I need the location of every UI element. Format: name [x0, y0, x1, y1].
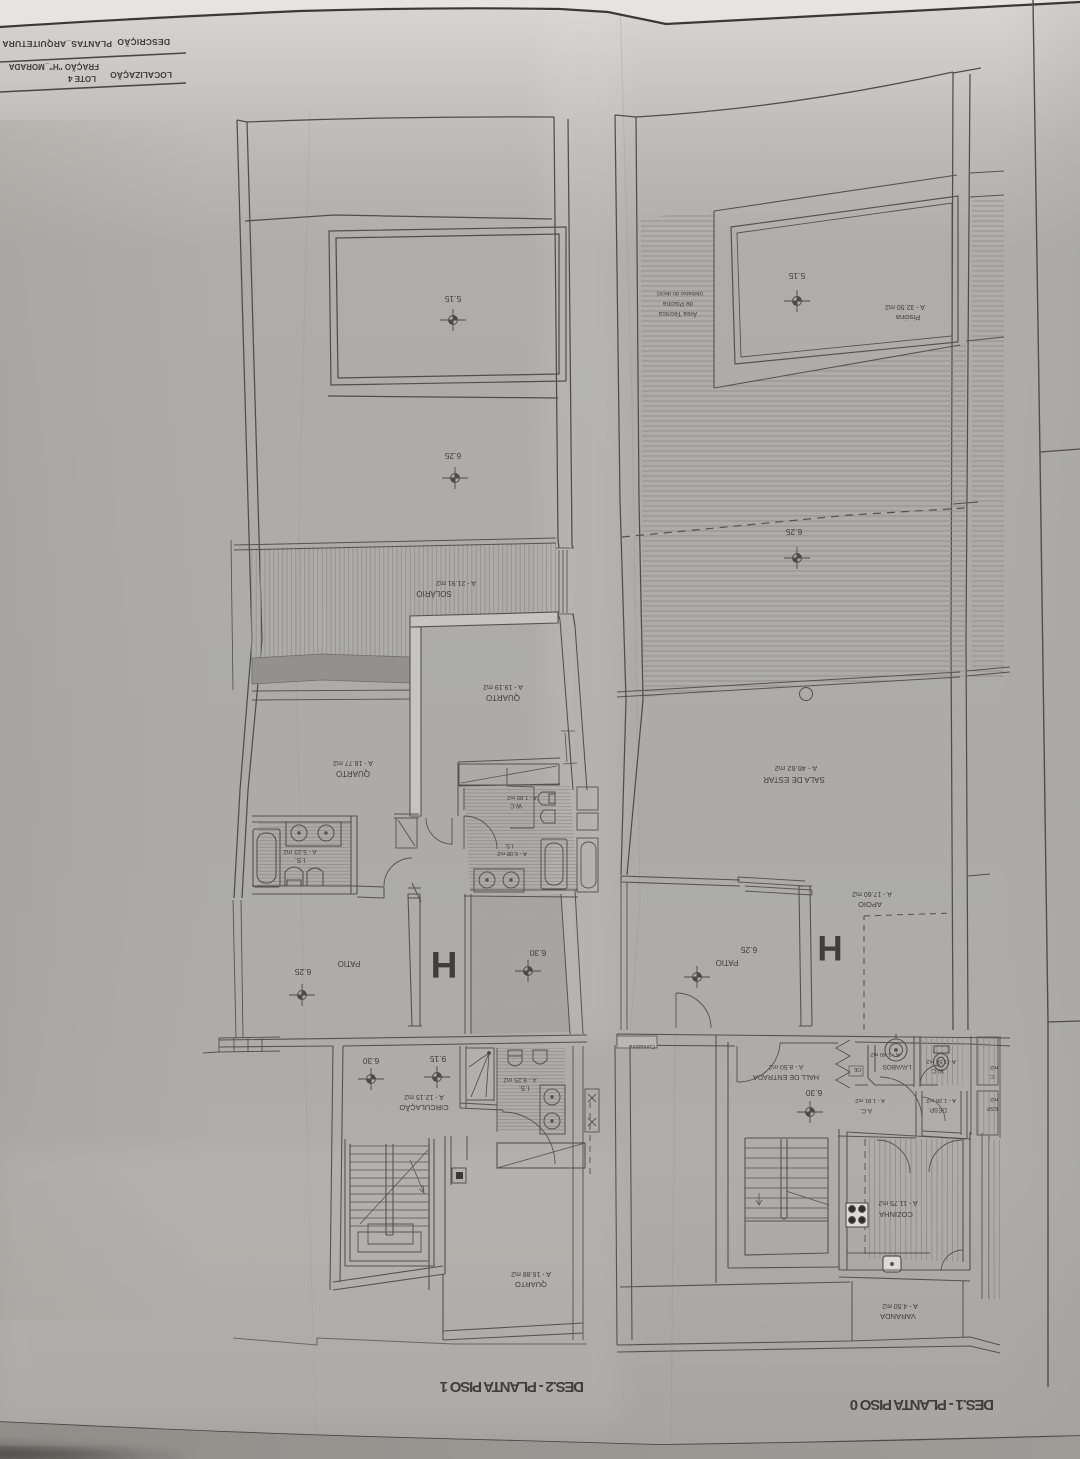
- svg-text:DES.1 - PLANTA PISO 0: DES.1 - PLANTA PISO 0: [850, 1396, 994, 1413]
- svg-text:A - 1.81 m2: A - 1.81 m2: [855, 1097, 885, 1103]
- svg-text:5.15: 5.15: [788, 271, 805, 281]
- svg-text:m2: m2: [990, 1096, 998, 1102]
- svg-text:A - 6.25 m2: A - 6.25 m2: [503, 1076, 537, 1083]
- svg-text:LOCALIZAÇÃO: LOCALIZAÇÃO: [110, 70, 172, 80]
- svg-text:A - 18.77 m2: A - 18.77 m2: [333, 759, 373, 766]
- svg-text:.C.: .C.: [988, 1073, 996, 1079]
- svg-text:QUARTO: QUARTO: [336, 769, 370, 778]
- svg-text:A - 46.62 m2: A - 46.62 m2: [775, 764, 818, 773]
- svg-text:A - 21.91 m2: A - 21.91 m2: [436, 579, 476, 586]
- svg-text:9.15: 9.15: [429, 1054, 446, 1064]
- svg-text:SALA DE ESTAR: SALA DE ESTAR: [763, 775, 825, 784]
- svg-text:A - 1.40 m2: A - 1.40 m2: [870, 1051, 900, 1057]
- svg-text:Área Técnica: Área Técnica: [659, 310, 698, 319]
- svg-text:QUARTO: QUARTO: [515, 1280, 547, 1289]
- svg-text:6.25: 6.25: [444, 451, 461, 461]
- svg-text:FRAÇÃO "H"_MORADA: FRAÇÃO "H"_MORADA: [9, 62, 99, 71]
- svg-text:H: H: [431, 944, 458, 985]
- svg-text:I.S.: I.S.: [295, 856, 306, 863]
- svg-text:A - 16.88 m2: A - 16.88 m2: [511, 1270, 551, 1277]
- svg-text:A - 1.28 m2: A - 1.28 m2: [926, 1097, 956, 1103]
- svg-text:A - 8.50 m2: A - 8.50 m2: [768, 1063, 803, 1070]
- svg-text:H: H: [817, 928, 842, 967]
- svg-text:I.S.: I.S.: [519, 1084, 530, 1091]
- svg-text:A - 32.50 m2: A - 32.50 m2: [885, 303, 925, 310]
- svg-text:I.S.: I.S.: [504, 842, 514, 849]
- svg-text:VARANDA: VARANDA: [880, 1312, 916, 1321]
- svg-text:6.25: 6.25: [785, 527, 802, 537]
- svg-text:SOLÁRIO: SOLÁRIO: [416, 589, 452, 598]
- svg-text:W.C.: W.C.: [930, 1067, 944, 1074]
- svg-text:Piscina: Piscina: [895, 313, 920, 322]
- svg-text:m2: m2: [990, 1064, 998, 1070]
- svg-text:A - 12.15 m2: A - 12.15 m2: [404, 1093, 444, 1100]
- svg-text:6.25: 6.25: [294, 967, 311, 977]
- svg-text:Contadora: Contadora: [628, 1043, 655, 1049]
- svg-text:COZINHA: COZINHA: [879, 1210, 913, 1219]
- svg-text:DESCRIÇÃO: DESCRIÇÃO: [117, 37, 170, 47]
- svg-text:6.30: 6.30: [805, 1088, 822, 1098]
- svg-text:A.C.: A.C.: [860, 1107, 872, 1114]
- svg-text:HALL DE ENTRADA: HALL DE ENTRADA: [753, 1073, 819, 1082]
- svg-text:A - 1.56 m2: A - 1.56 m2: [926, 1058, 956, 1064]
- svg-text:6.30: 6.30: [529, 948, 546, 958]
- svg-text:ESP.: ESP.: [986, 1105, 998, 1111]
- svg-text:PATIO: PATIO: [716, 958, 739, 967]
- svg-text:PLANTAS_ARQUITETURA: PLANTAS_ARQUITETURA: [2, 39, 112, 49]
- svg-text:6.30: 6.30: [362, 1056, 379, 1066]
- svg-text:de Piscina: de Piscina: [663, 300, 693, 307]
- svg-text:APOIO: APOIO: [858, 900, 882, 909]
- svg-text:A - 11.75 m2: A - 11.75 m2: [878, 1199, 917, 1206]
- svg-text:W.C: W.C: [510, 802, 522, 809]
- svg-text:CIRCULAÇÃO: CIRCULAÇÃO: [399, 1103, 448, 1112]
- svg-text:5.15: 5.15: [444, 294, 461, 304]
- svg-text:DE: DE: [853, 1066, 861, 1072]
- svg-text:A - 6.08 m2: A - 6.08 m2: [497, 850, 527, 856]
- svg-text:A - 4.50 m2: A - 4.50 m2: [882, 1302, 918, 1309]
- svg-text:A - 17.60 m2: A - 17.60 m2: [852, 890, 892, 897]
- svg-text:DES.2 - PLANTA PISO 1: DES.2 - PLANTA PISO 1: [440, 1378, 584, 1395]
- svg-text:6.25: 6.25: [740, 945, 757, 955]
- svg-text:PATIO: PATIO: [338, 959, 361, 968]
- svg-text:A - 19.19 m2: A - 19.19 m2: [483, 683, 523, 690]
- svg-text:A - 5.23 m2: A - 5.23 m2: [283, 848, 317, 855]
- svg-text:A - 1.89 m2: A - 1.89 m2: [507, 794, 537, 800]
- svg-text:LAVABOS: LAVABOS: [883, 1063, 912, 1070]
- svg-text:(debaixo do deck): (debaixo do deck): [657, 290, 703, 296]
- svg-text:LOTE 4: LOTE 4: [67, 74, 96, 83]
- svg-text:QUARTO: QUARTO: [486, 693, 520, 702]
- svg-text:DESP.: DESP.: [929, 1106, 947, 1113]
